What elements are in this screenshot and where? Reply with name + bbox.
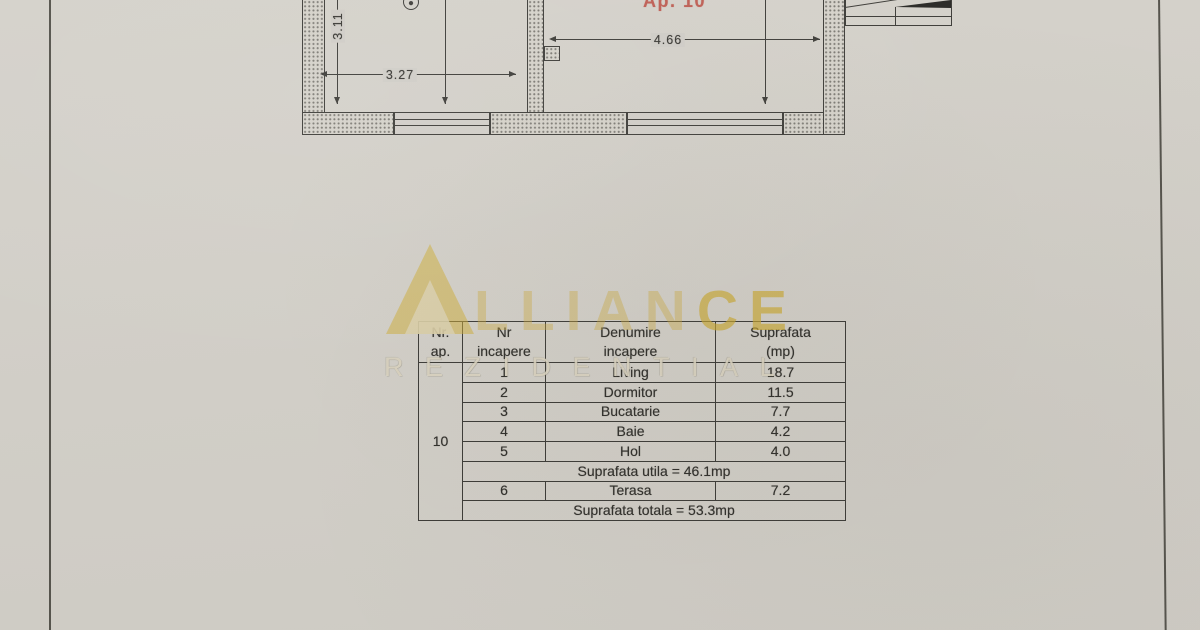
- header-nr-incapere: Nr incapere: [463, 322, 546, 363]
- dim-line-327: [322, 74, 516, 75]
- apartment-label: Ap. 10: [643, 0, 706, 12]
- plan-circle-marker-icon: [403, 0, 419, 10]
- cell-room-name: Baie: [546, 422, 716, 442]
- scan-content: 3.27 3.11 4.66 Ap. 10: [0, 0, 1200, 630]
- cell-room-nr: 4: [463, 422, 546, 442]
- plan-wall-middle: [527, 0, 544, 113]
- header-nr-ap: Nr. ap.: [419, 322, 463, 363]
- plan-wall-bottom-middle: [490, 112, 627, 135]
- dim-line-466: [551, 39, 820, 40]
- dim-label-left-room-width: 3.27: [383, 68, 417, 82]
- header-denumire-line1: Denumire: [546, 323, 715, 342]
- cell-room-name: Living: [546, 363, 716, 383]
- header-nr-incapere-line2: incapere: [463, 342, 545, 361]
- cell-room-nr: 3: [463, 402, 546, 422]
- cell-room-name: Terasa: [546, 481, 716, 501]
- header-nr-incapere-line1: Nr: [463, 323, 545, 342]
- dim-label-left-room-height: 3.11: [331, 9, 345, 42]
- cell-room-name: Bucatarie: [546, 402, 716, 422]
- plan-window-left-room: [394, 112, 490, 135]
- table-row-summary: Suprafata utila = 46.1mp: [419, 461, 846, 481]
- cell-room-area: 11.5: [716, 382, 846, 402]
- header-denumire: Denumire incapere: [546, 322, 716, 363]
- dim-arrow-down-aux-living: [762, 97, 768, 104]
- dim-arrow-down-311: [334, 97, 340, 104]
- cell-room-area: 18.7: [716, 363, 846, 383]
- header-denumire-line2: incapere: [546, 342, 715, 361]
- stairs-vertical-line: [895, 7, 896, 26]
- dim-line-aux-left: [445, 0, 446, 104]
- plan-wall-middle-step: [544, 46, 560, 61]
- page-border-right: [1158, 0, 1167, 630]
- cell-room-name: Dormitor: [546, 382, 716, 402]
- table-row: 6 Terasa 7.2: [419, 481, 846, 501]
- cell-room-area: 7.7: [716, 402, 846, 422]
- cell-room-area: 7.2: [716, 481, 846, 501]
- cell-room-nr: 2: [463, 382, 546, 402]
- header-nr-ap-line2: ap.: [419, 342, 462, 361]
- dim-arrow-left-466: [549, 36, 556, 42]
- dim-arrow-left-327: [320, 71, 327, 77]
- plan-wall-right: [823, 0, 845, 135]
- header-nr-ap-line1: Nr.: [419, 323, 462, 342]
- table-row: 10 1 Living 18.7: [419, 363, 846, 383]
- table-row: 2 Dormitor 11.5: [419, 382, 846, 402]
- header-suprafata-line1: Suprafata: [716, 323, 845, 342]
- cell-room-nr: 6: [463, 481, 546, 501]
- table-row: 3 Bucatarie 7.7: [419, 402, 846, 422]
- table-row-summary: Suprafata totala = 53.3mp: [419, 501, 846, 521]
- header-suprafata: Suprafata (mp): [716, 322, 846, 363]
- table-row: 5 Hol 4.0: [419, 442, 846, 462]
- dim-arrow-right-327: [509, 71, 516, 77]
- dim-label-living-width: 4.66: [651, 33, 685, 47]
- page-border-left: [49, 0, 51, 630]
- cell-total-area: Suprafata totala = 53.3mp: [463, 501, 846, 521]
- dim-arrow-down-aux-left: [442, 97, 448, 104]
- dim-arrow-right-466: [813, 36, 820, 42]
- cell-room-nr: 1: [463, 363, 546, 383]
- cell-room-area: 4.2: [716, 422, 846, 442]
- table-header-row: Nr. ap. Nr incapere Denumire incapere Su…: [419, 322, 846, 363]
- plan-window-living: [627, 112, 783, 135]
- plan-wall-left: [302, 0, 325, 113]
- scanned-document-page: 3.27 3.11 4.66 Ap. 10: [0, 0, 1200, 630]
- area-table: Nr. ap. Nr incapere Denumire incapere Su…: [418, 321, 846, 521]
- header-suprafata-line2: (mp): [716, 342, 845, 361]
- table-row: 4 Baie 4.2: [419, 422, 846, 442]
- cell-room-nr: 5: [463, 442, 546, 462]
- cell-room-name: Hol: [546, 442, 716, 462]
- cell-apartment-number: 10: [419, 363, 463, 521]
- stairs-divider-line: [845, 16, 952, 17]
- dim-line-aux-living: [765, 0, 766, 104]
- cell-room-area: 4.0: [716, 442, 846, 462]
- plan-wall-bottom-corner-left: [302, 112, 394, 135]
- cell-useful-area: Suprafata utila = 46.1mp: [463, 461, 846, 481]
